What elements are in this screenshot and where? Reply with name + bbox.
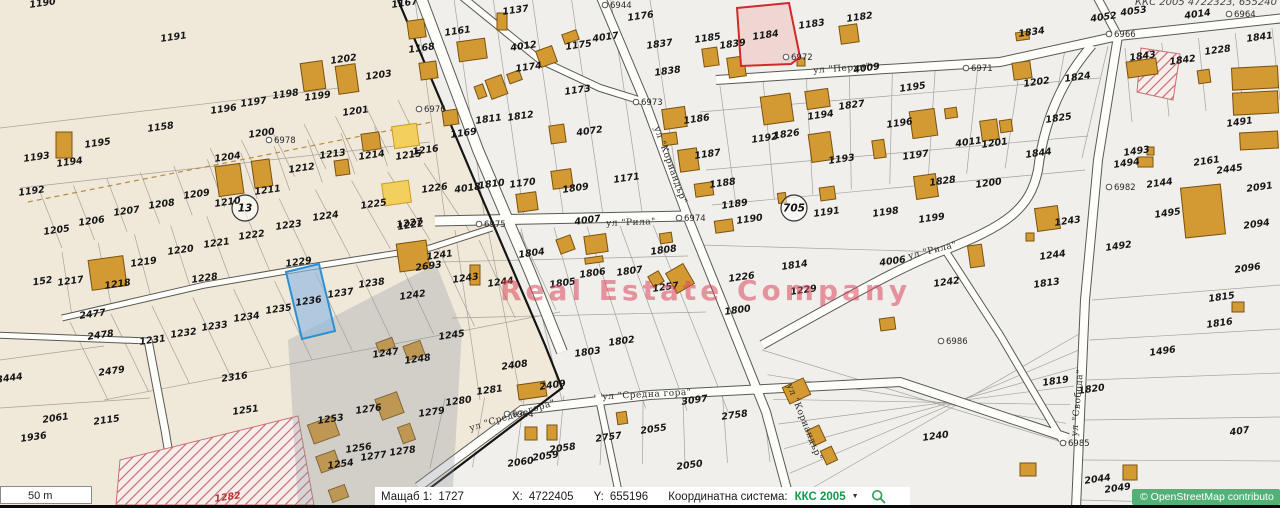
building	[616, 411, 628, 424]
survey-node-icon	[266, 137, 272, 143]
y-coordinate-label: Y:	[594, 491, 604, 503]
x-coordinate-label: X:	[512, 491, 523, 503]
map-viewer-window: 1370511901191115811951193119411921196119…	[0, 0, 1280, 508]
street-name-label: ул "Рила"	[606, 217, 656, 229]
building	[457, 38, 488, 62]
building	[335, 64, 359, 95]
building	[547, 425, 557, 440]
survey-node-icon	[1106, 184, 1112, 190]
survey-node-icon	[416, 106, 422, 112]
node-label: 6976	[424, 105, 446, 115]
survey-node-icon	[938, 338, 944, 344]
node-label: 6966	[1114, 30, 1136, 40]
cadastral-map[interactable]: 1370511901191115811951193119411921196119…	[0, 0, 1280, 508]
y-coordinate-value: 655196	[610, 491, 648, 503]
building	[516, 192, 538, 213]
building	[215, 163, 244, 196]
building	[1240, 131, 1279, 150]
building	[1026, 233, 1034, 241]
node-label: 6975	[484, 220, 506, 230]
status-bar: Мащаб 1: 1727 X: 4722405 Y: 655196 Коорд…	[375, 487, 910, 506]
search-icon[interactable]	[871, 489, 886, 504]
building	[760, 93, 794, 125]
building	[584, 234, 608, 255]
survey-node-icon	[676, 215, 682, 221]
survey-node-icon	[783, 54, 789, 60]
osm-attribution[interactable]: © OpenStreetMap contributo	[1132, 489, 1280, 505]
building	[1232, 302, 1244, 312]
circled-label-text: 705	[783, 203, 805, 215]
chevron-down-icon[interactable]: ▼	[852, 493, 859, 500]
node-label: 6974	[684, 214, 706, 224]
building	[1123, 465, 1137, 480]
building	[702, 47, 719, 67]
x-coordinate-value: 4722405	[529, 491, 574, 503]
survey-node-icon	[963, 65, 969, 71]
building	[525, 427, 537, 440]
building	[300, 61, 326, 92]
building	[1231, 66, 1278, 90]
node-label: 6978	[274, 136, 296, 146]
survey-node-icon	[476, 221, 482, 227]
building	[549, 124, 566, 144]
building	[56, 132, 72, 158]
node-label: 6971	[971, 64, 993, 74]
survey-node-icon	[602, 2, 608, 8]
building	[714, 219, 733, 233]
building	[819, 186, 836, 201]
building	[999, 119, 1013, 133]
map-scale-value: 1727	[438, 491, 464, 503]
building	[909, 108, 938, 138]
building	[805, 88, 830, 109]
building	[419, 61, 438, 80]
node-label: 6985	[1068, 439, 1090, 449]
building	[839, 24, 859, 44]
building	[872, 139, 886, 158]
scale-bar: 50 m	[0, 486, 92, 504]
survey-node-icon	[1060, 440, 1066, 446]
survey-node-icon	[1226, 11, 1232, 17]
crs-label: Координатна система:	[668, 491, 787, 503]
building	[334, 159, 350, 176]
survey-node-icon	[1106, 31, 1112, 37]
building	[879, 317, 896, 331]
crs-select[interactable]: ККС 2005	[795, 491, 846, 503]
node-label: 6982	[1114, 183, 1136, 193]
node-label: 6972	[791, 53, 813, 63]
node-label: 6986	[946, 337, 968, 347]
survey-node-icon	[633, 99, 639, 105]
building	[944, 107, 957, 119]
building	[659, 232, 672, 244]
map-scale-label: Мащаб 1:	[381, 491, 432, 503]
building	[407, 19, 426, 39]
building	[1232, 91, 1278, 115]
node-label: 6973	[641, 98, 663, 108]
building	[1020, 463, 1036, 476]
building	[968, 244, 985, 268]
scale-bar-label: 50 m	[28, 490, 52, 502]
building	[1197, 69, 1211, 84]
building	[392, 123, 420, 148]
node-label: 6964	[1234, 10, 1256, 20]
node-label: 6944	[610, 1, 632, 11]
building	[1180, 184, 1225, 238]
